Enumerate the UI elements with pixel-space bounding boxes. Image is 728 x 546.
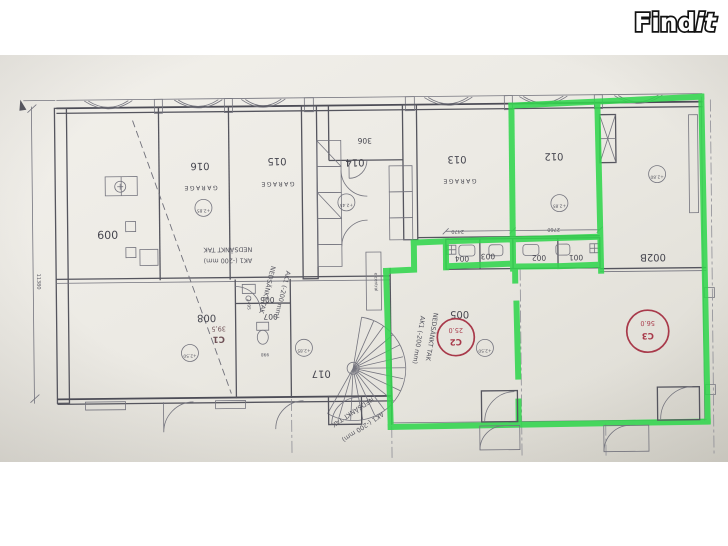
findit-logo-italic: it: [695, 8, 717, 37]
dimension-label: 998: [261, 351, 270, 357]
elevation-value: +2.50: [478, 347, 491, 353]
findit-logo: Findit: [634, 8, 717, 37]
room-label: 003: [481, 252, 496, 261]
dimension-label: 2495: [245, 299, 251, 310]
garage-label: GARAGE: [260, 180, 295, 187]
room-label: 005: [450, 308, 469, 319]
garage-label: GARAGE: [442, 177, 477, 184]
elevation-value: +2.85: [553, 203, 566, 209]
room-label: 009: [97, 228, 118, 241]
area-code: C1: [213, 334, 225, 344]
elevation-value: +2.45: [340, 202, 353, 208]
area-code: C3: [642, 330, 654, 340]
area-code: C2: [450, 336, 462, 346]
room-label: 012: [544, 150, 563, 161]
area-badge-c1: C1 39,5: [211, 325, 226, 344]
dimension-label: 2760: [547, 226, 560, 232]
room-label: 002: [532, 253, 547, 262]
elevation-value: +2.85: [197, 207, 210, 213]
garage-label: GARAGE: [183, 184, 218, 191]
listing-image: 009 016 015 014 013 012 002B 306 004 003…: [0, 0, 728, 546]
room-label: 004: [455, 254, 470, 263]
room-label: 017: [312, 368, 331, 379]
elevation-value: +2.50: [183, 352, 196, 358]
room-label: 014: [345, 156, 364, 167]
room-label: 002B: [640, 251, 666, 262]
area-value: 25.0: [448, 326, 463, 334]
room-label: 016: [190, 160, 209, 171]
elevation-value: +2.85: [297, 347, 310, 353]
elcentral-label: elcentral: [373, 273, 379, 292]
room-label: 015: [267, 155, 286, 166]
room-label: 001: [569, 253, 584, 262]
elevation-value: +2.80: [650, 174, 663, 180]
ceiling-note-line: NEDSÄNKT TAK: [203, 245, 253, 255]
dimension-label: 11380: [35, 274, 41, 290]
room-label: 008: [197, 312, 216, 323]
findit-logo-bold: Find: [634, 8, 695, 37]
room-label: 306: [357, 136, 372, 145]
floorplan-photo: 009 016 015 014 013 012 002B 306 004 003…: [0, 55, 728, 462]
room-label: 013: [447, 153, 466, 164]
ceiling-note-line: AK1 (-200 mm): [204, 256, 253, 265]
area-value: 56.0: [640, 319, 655, 327]
area-value: 39,5: [211, 325, 226, 333]
dimension-label: 2470: [451, 228, 464, 234]
